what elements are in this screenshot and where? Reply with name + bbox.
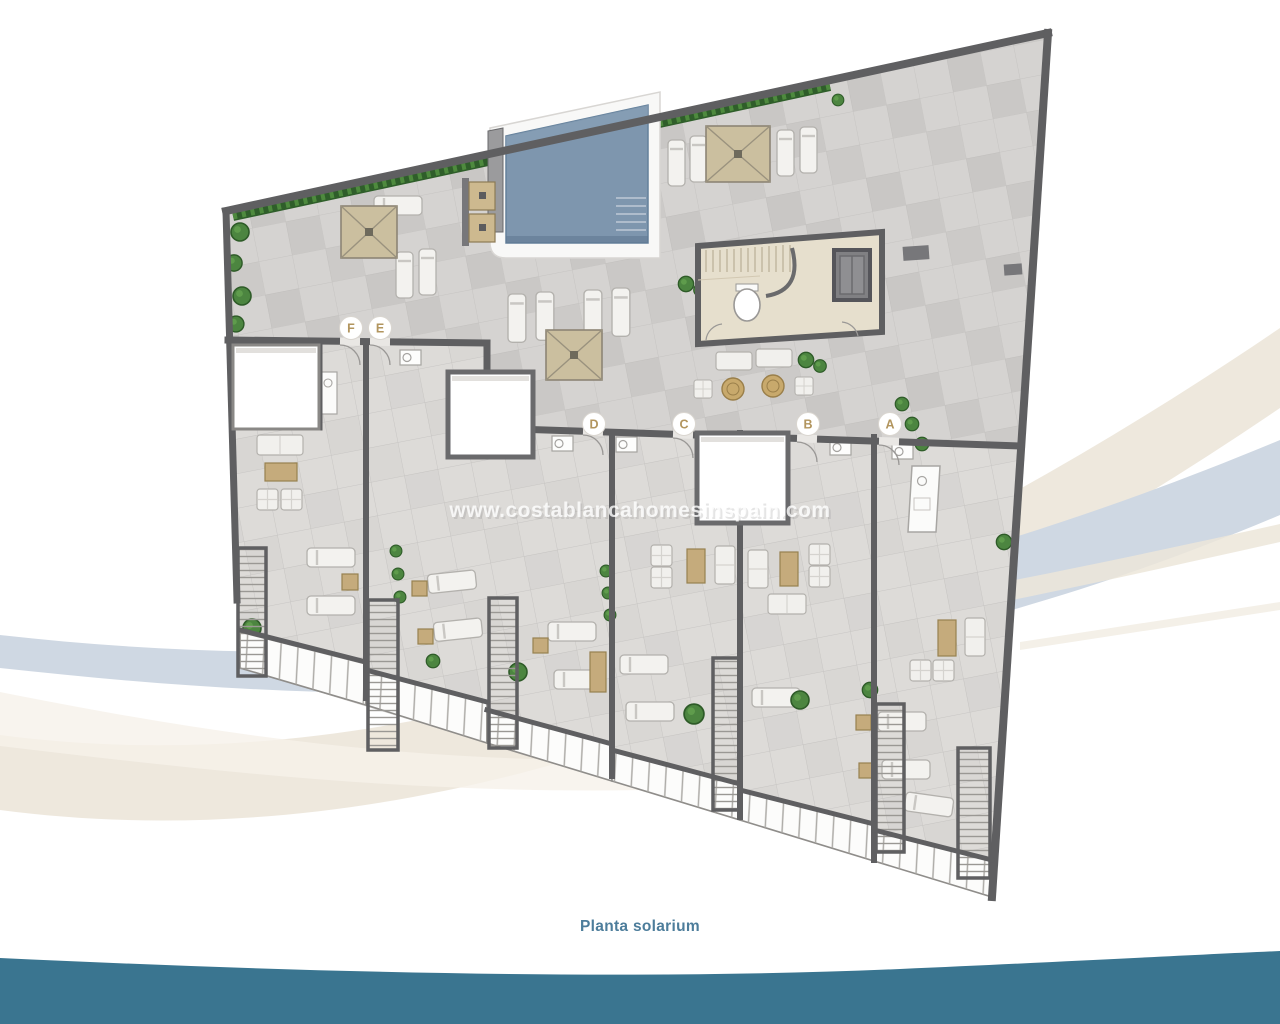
pergola [706, 126, 770, 182]
unit-label-E: E [376, 322, 384, 336]
skylight [448, 372, 533, 457]
watermark: www.costablancahomesinspain.com www.cost… [448, 499, 832, 524]
unit-label-A: A [885, 418, 894, 432]
toilet [734, 289, 760, 321]
unit-label-D: D [589, 418, 598, 432]
pergola [546, 330, 602, 380]
round-table [762, 375, 784, 397]
watermark-text: www.costablancahomesinspain.com [448, 499, 830, 522]
unit-label-C: C [679, 418, 688, 432]
pillar [903, 245, 930, 261]
unit-label-F: F [347, 322, 355, 336]
stair-block [698, 232, 882, 344]
counter [908, 466, 940, 532]
unit-label-B: B [803, 418, 812, 432]
skylight [233, 345, 319, 429]
round-table [722, 378, 744, 400]
pillar [1004, 263, 1023, 275]
table [265, 463, 297, 481]
pergola [341, 206, 397, 258]
floor-plan-page: FEDCBA www.costablancahomesinspain.com w… [0, 0, 1280, 1024]
elevator [834, 250, 870, 300]
plan-caption: Planta solarium [580, 918, 700, 935]
solarium-floor-plan: FEDCBA www.costablancahomesinspain.com w… [0, 0, 1280, 1024]
